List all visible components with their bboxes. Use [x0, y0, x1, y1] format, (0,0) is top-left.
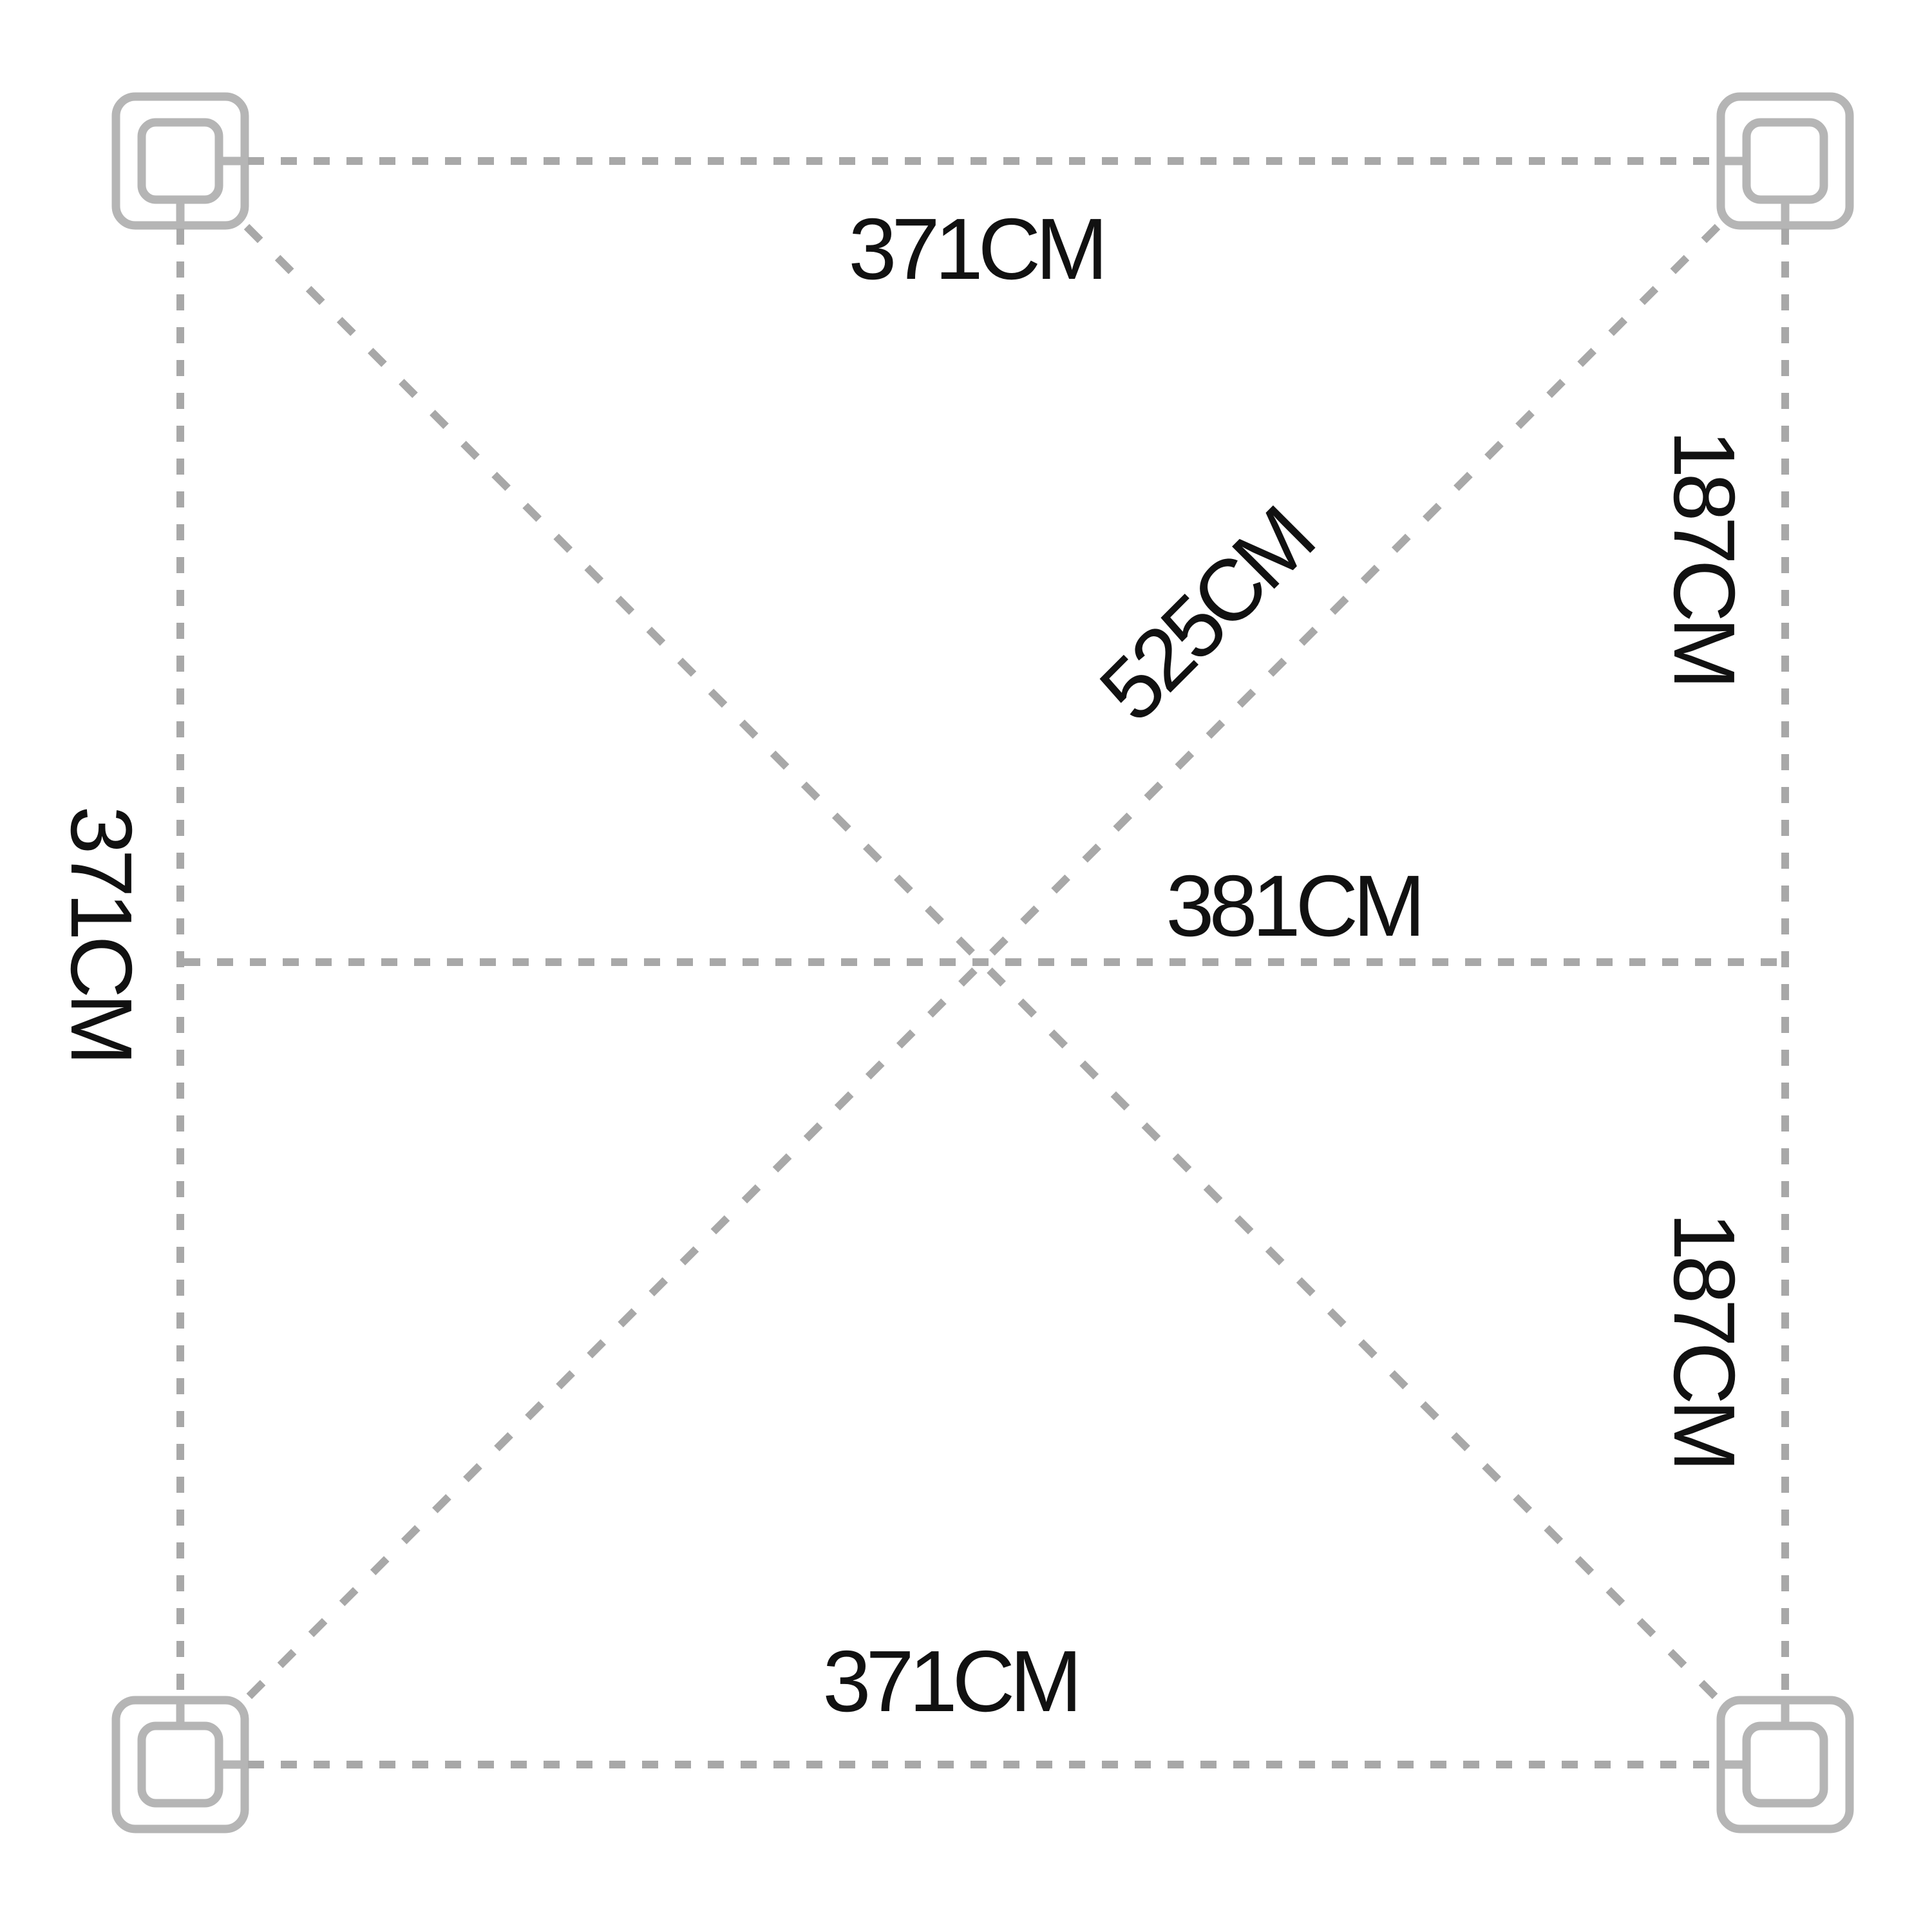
post-inner-square	[1747, 122, 1824, 200]
dimension-label-left: 371CM	[53, 806, 150, 1060]
dimension-label-top: 371CM	[848, 200, 1103, 298]
corner-post-icon-top-left	[116, 97, 245, 226]
corner-post-icon-bottom-left	[116, 1700, 245, 1829]
post-inner-square	[1747, 1726, 1824, 1803]
dimension-label-bottom: 371CM	[822, 1633, 1077, 1730]
dimension-diagram: 371CM 371CM 187CM 187CM 381CM 525CM 371C…	[0, 0, 1932, 1932]
post-inner-square	[142, 122, 219, 200]
post-inner-square	[142, 1726, 219, 1803]
corner-post-icon-bottom-right	[1720, 1700, 1850, 1829]
dimension-label-center-horizontal: 381CM	[1166, 857, 1420, 954]
dimension-label-diagonal: 525CM	[1081, 491, 1330, 739]
dimension-label-right-upper: 187CM	[1656, 430, 1753, 684]
dimension-label-right-lower: 187CM	[1656, 1212, 1753, 1466]
corner-post-icon-top-right	[1720, 97, 1850, 226]
